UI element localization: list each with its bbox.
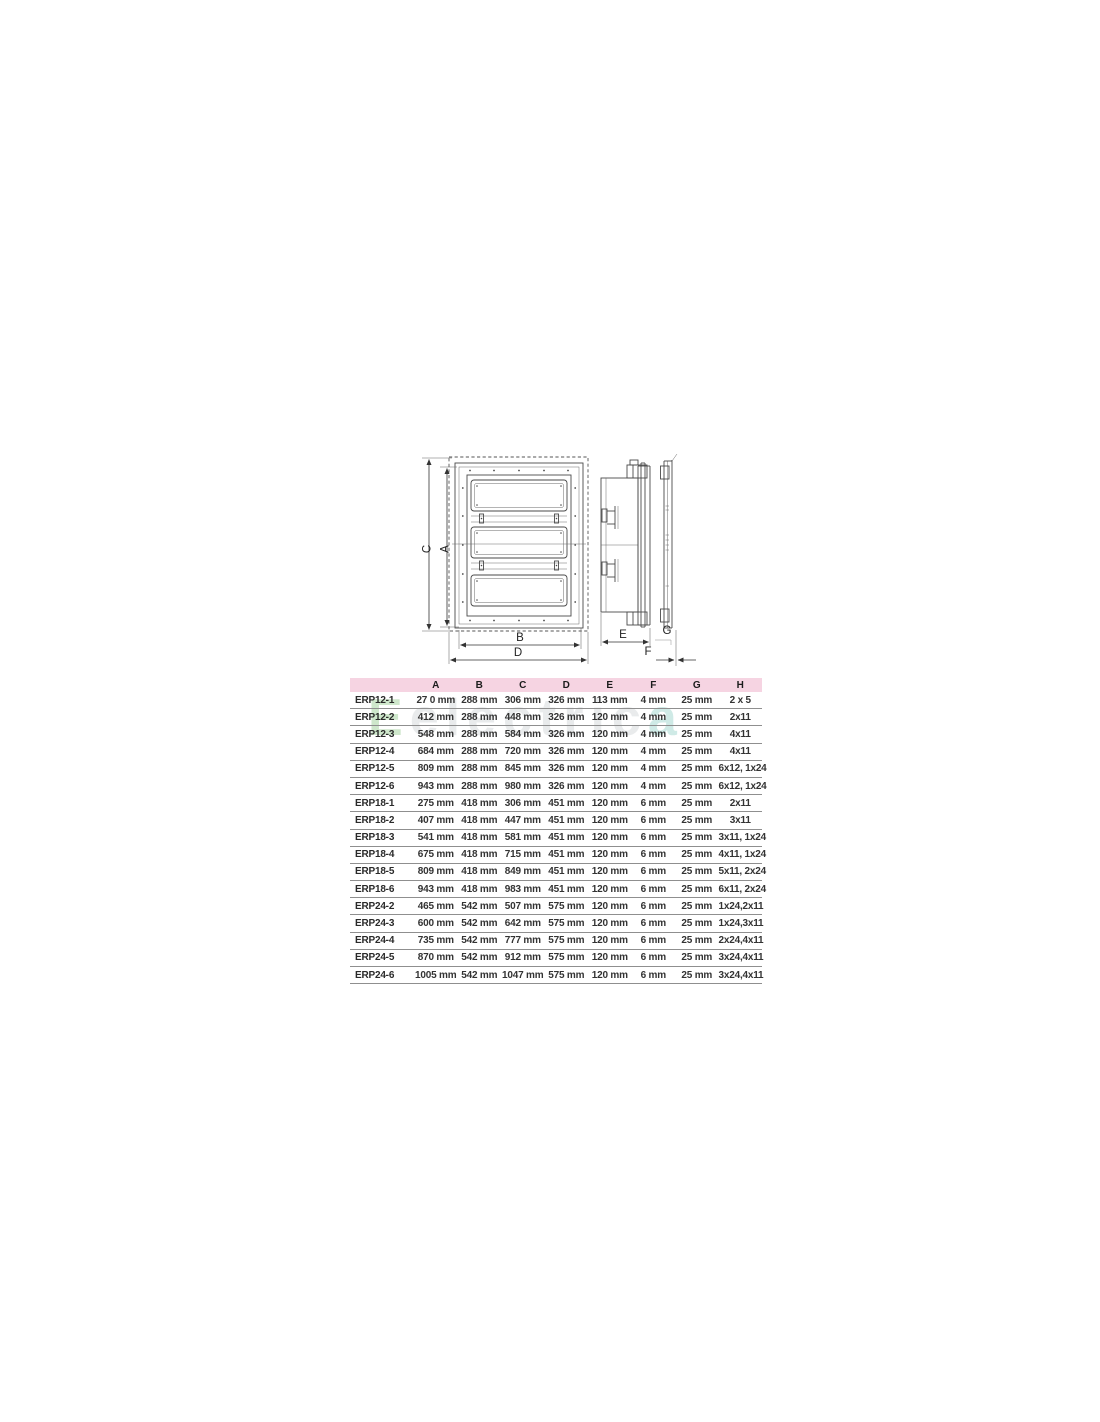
din-clip xyxy=(602,559,618,582)
value-cell: 451 mm xyxy=(545,881,589,898)
value-cell: 120 mm xyxy=(588,898,632,915)
value-cell: 6 mm xyxy=(632,932,676,949)
value-cell: 6 mm xyxy=(632,846,676,863)
value-cell: 120 mm xyxy=(588,829,632,846)
value-cell: 943 mm xyxy=(414,777,458,794)
table-header-row: ABCDEFGH xyxy=(350,678,762,692)
value-cell: 4 mm xyxy=(632,709,676,726)
table-header-col-8: H xyxy=(719,678,763,692)
value-cell: 4 mm xyxy=(632,692,676,709)
value-cell: 675 mm xyxy=(414,846,458,863)
value-cell: 120 mm xyxy=(588,743,632,760)
table-row: ERP24-3600 mm542 mm642 mm575 mm120 mm6 m… xyxy=(350,915,762,932)
value-cell: 6 mm xyxy=(632,795,676,812)
value-cell: 1005 mm xyxy=(414,967,458,984)
table-row: ERP12-127 0 mm288 mm306 mm326 mm113 mm4 … xyxy=(350,692,762,709)
table-row: ERP18-5809 mm418 mm849 mm451 mm120 mm6 m… xyxy=(350,863,762,880)
value-cell: 120 mm xyxy=(588,863,632,880)
table-header-model xyxy=(350,678,414,692)
value-cell: 326 mm xyxy=(545,777,589,794)
value-cell: 6 mm xyxy=(632,829,676,846)
table-row: ERP24-5870 mm542 mm912 mm575 mm120 mm6 m… xyxy=(350,949,762,966)
value-cell: 4 mm xyxy=(632,777,676,794)
value-cell: 25 mm xyxy=(675,795,719,812)
model-cell: ERP24-4 xyxy=(350,932,414,949)
table-row: ERP12-4684 mm288 mm720 mm326 mm120 mm4 m… xyxy=(350,743,762,760)
dimension-e: E xyxy=(601,613,650,646)
value-cell: 306 mm xyxy=(501,692,545,709)
value-cell: 288 mm xyxy=(458,760,502,777)
front-view xyxy=(449,457,588,631)
value-cell: 3x24,4x11 xyxy=(719,967,763,984)
table-row: ERP12-5809 mm288 mm845 mm326 mm120 mm4 m… xyxy=(350,760,762,777)
table-row: ERP18-2407 mm418 mm447 mm451 mm120 mm6 m… xyxy=(350,812,762,829)
value-cell: 275 mm xyxy=(414,795,458,812)
table-row: ERP12-2412 mm288 mm448 mm326 mm120 mm4 m… xyxy=(350,709,762,726)
dimension-g: G xyxy=(655,625,672,645)
model-cell: ERP12-3 xyxy=(350,726,414,743)
dim-label-a: A xyxy=(440,545,452,553)
value-cell: 288 mm xyxy=(458,726,502,743)
model-cell: ERP12-1 xyxy=(350,692,414,709)
value-cell: 6x12, 1x24 xyxy=(719,760,763,777)
value-cell: 418 mm xyxy=(458,863,502,880)
value-cell: 120 mm xyxy=(588,846,632,863)
profile-view xyxy=(661,454,678,628)
value-cell: 25 mm xyxy=(675,709,719,726)
value-cell: 1047 mm xyxy=(501,967,545,984)
table-row: ERP24-4735 mm542 mm777 mm575 mm120 mm6 m… xyxy=(350,932,762,949)
value-cell: 809 mm xyxy=(414,760,458,777)
value-cell: 120 mm xyxy=(588,777,632,794)
value-cell: 418 mm xyxy=(458,881,502,898)
value-cell: 4 mm xyxy=(632,726,676,743)
value-cell: 2 x 5 xyxy=(719,692,763,709)
dim-label-b: B xyxy=(516,632,524,644)
value-cell: 448 mm xyxy=(501,709,545,726)
value-cell: 25 mm xyxy=(675,967,719,984)
value-cell: 2x11 xyxy=(719,709,763,726)
value-cell: 3x11, 1x24 xyxy=(719,829,763,846)
model-cell: ERP18-6 xyxy=(350,881,414,898)
value-cell: 25 mm xyxy=(675,692,719,709)
value-cell: 845 mm xyxy=(501,760,545,777)
value-cell: 943 mm xyxy=(414,881,458,898)
value-cell: 980 mm xyxy=(501,777,545,794)
value-cell: 418 mm xyxy=(458,829,502,846)
table-row: ERP18-6943 mm418 mm983 mm451 mm120 mm6 m… xyxy=(350,881,762,898)
value-cell: 120 mm xyxy=(588,795,632,812)
value-cell: 575 mm xyxy=(545,898,589,915)
value-cell: 25 mm xyxy=(675,812,719,829)
value-cell: 288 mm xyxy=(458,743,502,760)
value-cell: 3x24,4x11 xyxy=(719,949,763,966)
value-cell: 288 mm xyxy=(458,692,502,709)
value-cell: 451 mm xyxy=(545,829,589,846)
value-cell: 715 mm xyxy=(501,846,545,863)
value-cell: 4x11 xyxy=(719,726,763,743)
table-row: ERP12-6943 mm288 mm980 mm326 mm120 mm4 m… xyxy=(350,777,762,794)
value-cell: 542 mm xyxy=(458,915,502,932)
value-cell: 912 mm xyxy=(501,949,545,966)
screw-dots xyxy=(462,470,576,622)
value-cell: 113 mm xyxy=(588,692,632,709)
value-cell: 451 mm xyxy=(545,863,589,880)
model-cell: ERP18-3 xyxy=(350,829,414,846)
value-cell: 451 mm xyxy=(545,795,589,812)
value-cell: 849 mm xyxy=(501,863,545,880)
value-cell: 642 mm xyxy=(501,915,545,932)
value-cell: 3x11 xyxy=(719,812,763,829)
model-cell: ERP18-5 xyxy=(350,863,414,880)
value-cell: 541 mm xyxy=(414,829,458,846)
page: C A B D E F xyxy=(0,0,1100,1422)
dim-label-g: G xyxy=(663,625,672,637)
value-cell: 25 mm xyxy=(675,777,719,794)
value-cell: 120 mm xyxy=(588,915,632,932)
model-cell: ERP24-6 xyxy=(350,967,414,984)
value-cell: 451 mm xyxy=(545,846,589,863)
value-cell: 407 mm xyxy=(414,812,458,829)
table-row: ERP18-4675 mm418 mm715 mm451 mm120 mm6 m… xyxy=(350,846,762,863)
value-cell: 581 mm xyxy=(501,829,545,846)
table-row: ERP24-61005 mm542 mm1047 mm575 mm120 mm6… xyxy=(350,967,762,984)
value-cell: 120 mm xyxy=(588,760,632,777)
value-cell: 465 mm xyxy=(414,898,458,915)
value-cell: 326 mm xyxy=(545,709,589,726)
value-cell: 25 mm xyxy=(675,915,719,932)
value-cell: 25 mm xyxy=(675,932,719,949)
model-cell: ERP12-2 xyxy=(350,709,414,726)
value-cell: 1x24,3x11 xyxy=(719,915,763,932)
value-cell: 120 mm xyxy=(588,709,632,726)
value-cell: 575 mm xyxy=(545,967,589,984)
value-cell: 735 mm xyxy=(414,932,458,949)
value-cell: 27 0 mm xyxy=(414,692,458,709)
value-cell: 5x11, 2x24 xyxy=(719,863,763,880)
model-cell: ERP12-6 xyxy=(350,777,414,794)
value-cell: 684 mm xyxy=(414,743,458,760)
table-header-col-6: F xyxy=(632,678,676,692)
dim-label-f: F xyxy=(644,646,651,658)
value-cell: 418 mm xyxy=(458,795,502,812)
table-header-col-3: C xyxy=(501,678,545,692)
value-cell: 25 mm xyxy=(675,829,719,846)
value-cell: 507 mm xyxy=(501,898,545,915)
table-header-col-5: E xyxy=(588,678,632,692)
value-cell: 4x11 xyxy=(719,743,763,760)
value-cell: 447 mm xyxy=(501,812,545,829)
value-cell: 2x11 xyxy=(719,795,763,812)
value-cell: 542 mm xyxy=(458,949,502,966)
value-cell: 120 mm xyxy=(588,949,632,966)
value-cell: 548 mm xyxy=(414,726,458,743)
value-cell: 326 mm xyxy=(545,692,589,709)
table-header-col-7: G xyxy=(675,678,719,692)
value-cell: 6 mm xyxy=(632,898,676,915)
value-cell: 4 mm xyxy=(632,760,676,777)
model-cell: ERP18-2 xyxy=(350,812,414,829)
value-cell: 326 mm xyxy=(545,743,589,760)
dim-label-c: C xyxy=(422,545,434,553)
table-row: ERP18-3541 mm418 mm581 mm451 mm120 mm6 m… xyxy=(350,829,762,846)
dimensions-table: ABCDEFGH ERP12-127 0 mm288 mm306 mm326 m… xyxy=(350,678,762,984)
value-cell: 412 mm xyxy=(414,709,458,726)
value-cell: 6 mm xyxy=(632,967,676,984)
value-cell: 6 mm xyxy=(632,812,676,829)
value-cell: 870 mm xyxy=(414,949,458,966)
value-cell: 575 mm xyxy=(545,949,589,966)
value-cell: 288 mm xyxy=(458,777,502,794)
value-cell: 6 mm xyxy=(632,949,676,966)
value-cell: 25 mm xyxy=(675,846,719,863)
value-cell: 6 mm xyxy=(632,881,676,898)
value-cell: 6x12, 1x24 xyxy=(719,777,763,794)
din-clip xyxy=(602,506,618,529)
dimension-c: C xyxy=(422,458,453,631)
table-row: ERP18-1275 mm418 mm306 mm451 mm120 mm6 m… xyxy=(350,795,762,812)
value-cell: 451 mm xyxy=(545,812,589,829)
value-cell: 326 mm xyxy=(545,760,589,777)
dim-label-e: E xyxy=(619,629,627,641)
value-cell: 288 mm xyxy=(458,709,502,726)
value-cell: 120 mm xyxy=(588,726,632,743)
value-cell: 25 mm xyxy=(675,949,719,966)
value-cell: 2x24,4x11 xyxy=(719,932,763,949)
value-cell: 25 mm xyxy=(675,863,719,880)
model-cell: ERP18-1 xyxy=(350,795,414,812)
table-header-col-4: D xyxy=(545,678,589,692)
value-cell: 25 mm xyxy=(675,898,719,915)
value-cell: 542 mm xyxy=(458,898,502,915)
technical-drawing: C A B D E F xyxy=(398,438,722,682)
table-header-col-1: A xyxy=(414,678,458,692)
value-cell: 584 mm xyxy=(501,726,545,743)
value-cell: 418 mm xyxy=(458,812,502,829)
model-cell: ERP12-5 xyxy=(350,760,414,777)
dim-label-d: D xyxy=(514,647,522,659)
side-view xyxy=(601,460,650,627)
value-cell: 418 mm xyxy=(458,846,502,863)
model-cell: ERP24-2 xyxy=(350,898,414,915)
value-cell: 575 mm xyxy=(545,932,589,949)
value-cell: 120 mm xyxy=(588,967,632,984)
table-row: ERP12-3548 mm288 mm584 mm326 mm120 mm4 m… xyxy=(350,726,762,743)
value-cell: 6x11, 2x24 xyxy=(719,881,763,898)
value-cell: 4 mm xyxy=(632,743,676,760)
value-cell: 25 mm xyxy=(675,760,719,777)
value-cell: 25 mm xyxy=(675,726,719,743)
value-cell: 777 mm xyxy=(501,932,545,949)
value-cell: 1x24,2x11 xyxy=(719,898,763,915)
value-cell: 720 mm xyxy=(501,743,545,760)
value-cell: 542 mm xyxy=(458,932,502,949)
value-cell: 306 mm xyxy=(501,795,545,812)
value-cell: 25 mm xyxy=(675,743,719,760)
dimension-a: A xyxy=(440,467,460,627)
value-cell: 120 mm xyxy=(588,932,632,949)
value-cell: 326 mm xyxy=(545,726,589,743)
value-cell: 575 mm xyxy=(545,915,589,932)
model-cell: ERP18-4 xyxy=(350,846,414,863)
value-cell: 6 mm xyxy=(632,863,676,880)
value-cell: 25 mm xyxy=(675,881,719,898)
model-cell: ERP12-4 xyxy=(350,743,414,760)
value-cell: 120 mm xyxy=(588,881,632,898)
value-cell: 4x11, 1x24 xyxy=(719,846,763,863)
value-cell: 120 mm xyxy=(588,812,632,829)
table-header-col-2: B xyxy=(458,678,502,692)
value-cell: 983 mm xyxy=(501,881,545,898)
model-cell: ERP24-3 xyxy=(350,915,414,932)
table-row: ERP24-2465 mm542 mm507 mm575 mm120 mm6 m… xyxy=(350,898,762,915)
value-cell: 600 mm xyxy=(414,915,458,932)
model-cell: ERP24-5 xyxy=(350,949,414,966)
value-cell: 809 mm xyxy=(414,863,458,880)
value-cell: 542 mm xyxy=(458,967,502,984)
value-cell: 6 mm xyxy=(632,915,676,932)
